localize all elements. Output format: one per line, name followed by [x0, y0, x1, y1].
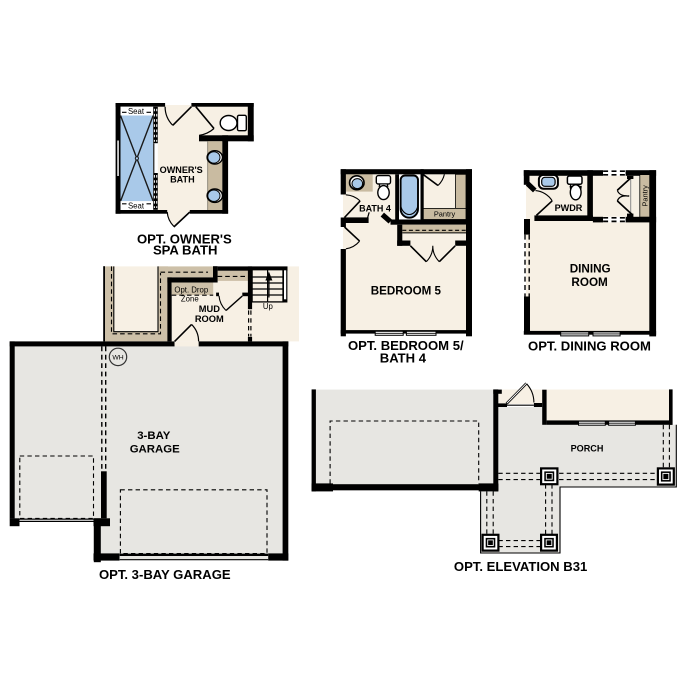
- svg-text:3-BAY: 3-BAY: [137, 430, 171, 442]
- svg-text:BATH 4: BATH 4: [380, 351, 427, 366]
- svg-text:Pantry: Pantry: [641, 185, 650, 207]
- svg-text:OPT. ELEVATION B31: OPT. ELEVATION B31: [454, 559, 587, 574]
- svg-text:Seat: Seat: [128, 107, 145, 116]
- svg-text:WH: WH: [112, 354, 123, 361]
- svg-text:BEDROOM 5: BEDROOM 5: [371, 284, 442, 297]
- svg-text:DINING: DINING: [570, 262, 611, 275]
- svg-text:SPA BATH: SPA BATH: [153, 243, 218, 258]
- svg-text:Opt. Drop: Opt. Drop: [174, 285, 208, 294]
- svg-text:PORCH: PORCH: [571, 443, 604, 453]
- svg-text:BATH: BATH: [170, 174, 195, 184]
- svg-text:ROOM: ROOM: [195, 314, 224, 324]
- svg-text:OPT. 3-BAY GARAGE: OPT. 3-BAY GARAGE: [99, 567, 231, 582]
- svg-text:PWDR: PWDR: [555, 203, 583, 213]
- svg-text:Pantry: Pantry: [434, 210, 456, 219]
- svg-text:OPT. DINING ROOM: OPT. DINING ROOM: [528, 338, 651, 353]
- svg-text:Zone: Zone: [181, 294, 199, 303]
- svg-text:GARAGE: GARAGE: [130, 444, 180, 456]
- svg-text:BATH 4: BATH 4: [359, 204, 391, 214]
- svg-text:ROOM: ROOM: [571, 276, 607, 289]
- svg-text:Up: Up: [263, 302, 274, 311]
- svg-text:MUD: MUD: [199, 304, 220, 314]
- svg-text:OWNER'S: OWNER'S: [160, 165, 203, 175]
- svg-text:Seat: Seat: [128, 202, 145, 211]
